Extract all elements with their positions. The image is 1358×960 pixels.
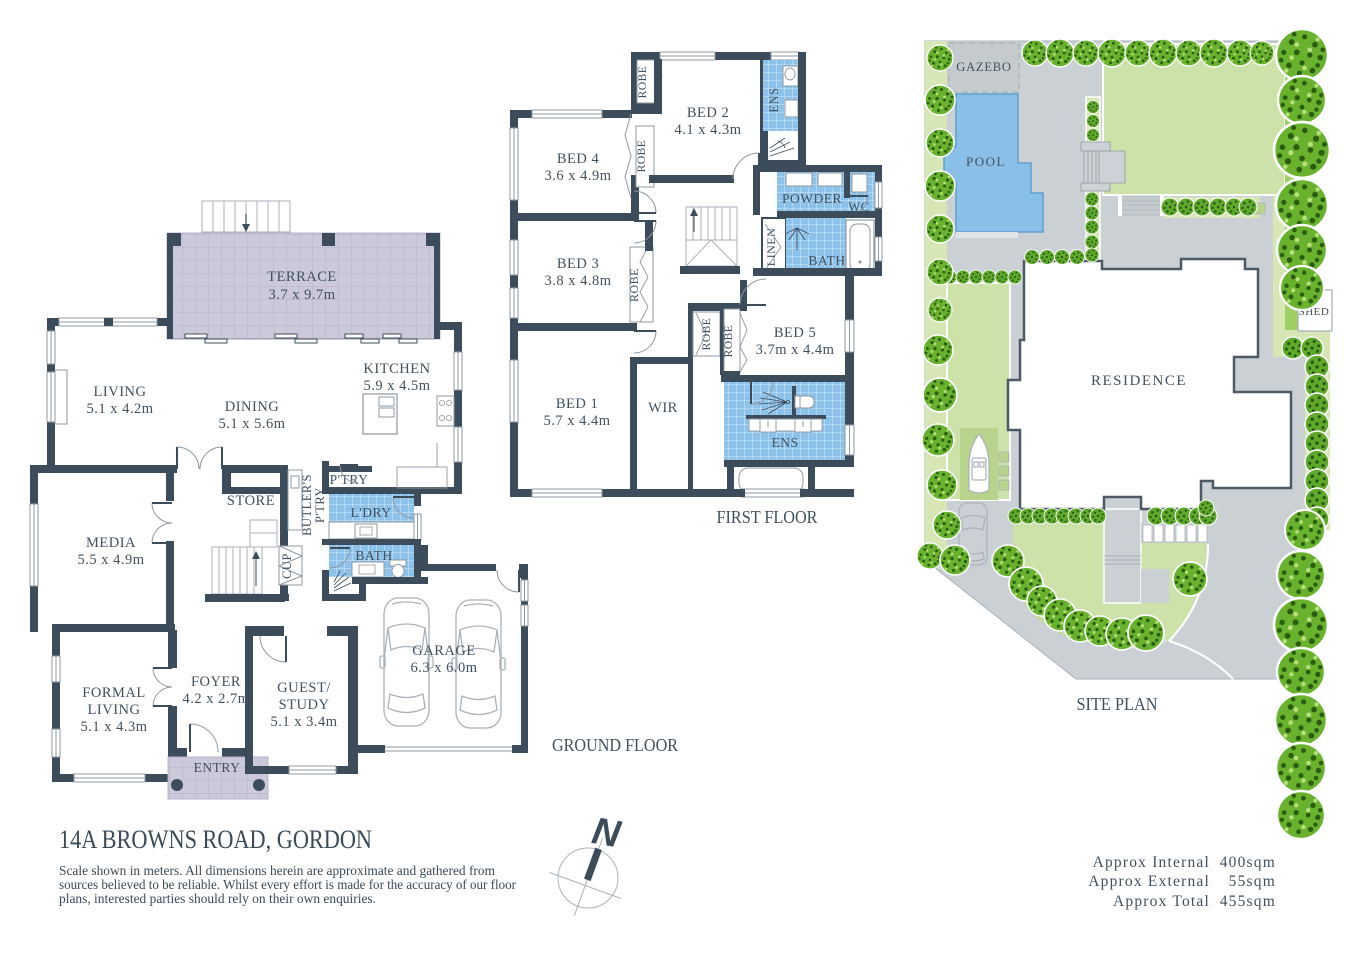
svg-text:ROBE: ROBE: [637, 66, 649, 99]
svg-text:BED 2: BED 2: [687, 105, 729, 121]
svg-text:3.6 x 4.9m: 3.6 x 4.9m: [544, 168, 611, 184]
svg-text:GARAGE: GARAGE: [412, 643, 475, 659]
svg-text:LIVING: LIVING: [88, 702, 141, 718]
svg-text:P'TRY: P'TRY: [330, 472, 369, 487]
svg-text:Approx Internal: Approx Internal: [1093, 854, 1210, 871]
svg-text:SITE PLAN: SITE PLAN: [1077, 694, 1158, 714]
svg-text:FOYER: FOYER: [191, 674, 241, 690]
svg-text:STORE: STORE: [227, 493, 275, 509]
svg-text:5.7 x 4.4m: 5.7 x 4.4m: [543, 413, 610, 429]
svg-text:POOL: POOL: [966, 154, 1006, 169]
svg-text:ROBE: ROBE: [627, 268, 641, 302]
svg-text:WIR: WIR: [648, 400, 678, 416]
svg-text:6.3 x 6.0m: 6.3 x 6.0m: [410, 660, 477, 676]
svg-text:BATH: BATH: [355, 548, 392, 563]
svg-text:55sqm: 55sqm: [1229, 873, 1276, 890]
svg-text:L'DRY: L'DRY: [351, 505, 392, 520]
svg-text:BED 5: BED 5: [774, 325, 816, 341]
svg-text:DINING: DINING: [225, 399, 280, 415]
svg-text:5.1 x 5.6m: 5.1 x 5.6m: [218, 416, 285, 432]
svg-text:Approx External: Approx External: [1088, 873, 1210, 890]
svg-text:CUP: CUP: [280, 553, 294, 579]
svg-text:FIRST FLOOR: FIRST FLOOR: [717, 507, 818, 527]
svg-text:ENTRY: ENTRY: [194, 760, 241, 775]
svg-text:4.2 x 2.7m: 4.2 x 2.7m: [182, 691, 249, 707]
svg-text:FORMAL: FORMAL: [82, 685, 145, 701]
svg-text:sources believed to be reliabl: sources believed to be reliable. Whilst …: [59, 877, 516, 892]
svg-text:5.1 x 4.3m: 5.1 x 4.3m: [80, 719, 147, 735]
svg-text:3.7 x 9.7m: 3.7 x 9.7m: [268, 287, 335, 303]
svg-text:400sqm: 400sqm: [1220, 854, 1276, 871]
svg-text:GROUND FLOOR: GROUND FLOOR: [552, 735, 678, 755]
svg-text:MEDIA: MEDIA: [86, 535, 136, 551]
svg-text:KITCHEN: KITCHEN: [363, 361, 430, 377]
svg-text:5.9 x 4.5m: 5.9 x 4.5m: [363, 378, 430, 394]
svg-text:5.5 x 4.9m: 5.5 x 4.9m: [77, 552, 144, 568]
svg-text:BED 1: BED 1: [556, 396, 598, 412]
svg-text:ROBE: ROBE: [701, 318, 713, 351]
svg-text:ROBE: ROBE: [636, 140, 648, 173]
svg-text:STUDY: STUDY: [279, 697, 330, 713]
svg-text:ENS: ENS: [771, 435, 798, 450]
svg-text:3.7m x 4.4m: 3.7m x 4.4m: [756, 342, 835, 358]
svg-text:ROBE: ROBE: [723, 325, 735, 358]
svg-text:ENS: ENS: [767, 87, 781, 112]
svg-text:GUEST/: GUEST/: [277, 680, 331, 696]
svg-text:3.8 x 4.8m: 3.8 x 4.8m: [544, 273, 611, 289]
svg-text:POWDER: POWDER: [782, 191, 842, 206]
svg-text:14A BROWNS ROAD, GORDON: 14A BROWNS ROAD, GORDON: [59, 825, 372, 854]
svg-text:455sqm: 455sqm: [1220, 893, 1276, 910]
svg-text:5.1 x 3.4m: 5.1 x 3.4m: [270, 714, 337, 730]
svg-text:BUTLER'S: BUTLER'S: [300, 474, 314, 536]
svg-text:LINEN: LINEN: [764, 228, 778, 267]
svg-text:plans, interested parties shou: plans, interested parties should rely on…: [59, 891, 376, 906]
svg-text:BATH: BATH: [808, 253, 845, 268]
svg-text:Approx Total: Approx Total: [1113, 893, 1210, 910]
svg-text:RESIDENCE: RESIDENCE: [1091, 373, 1187, 389]
svg-text:4.1 x 4.3m: 4.1 x 4.3m: [674, 122, 741, 138]
svg-text:TERRACE: TERRACE: [267, 269, 337, 285]
svg-text:BED 3: BED 3: [557, 256, 599, 272]
svg-text:BED 4: BED 4: [557, 151, 600, 167]
svg-text:LIVING: LIVING: [94, 384, 147, 400]
svg-text:Scale shown in meters. All dim: Scale shown in meters. All dimensions he…: [59, 863, 495, 878]
svg-text:5.1 x 4.2m: 5.1 x 4.2m: [86, 401, 153, 417]
svg-text:GAZEBO: GAZEBO: [956, 60, 1012, 74]
